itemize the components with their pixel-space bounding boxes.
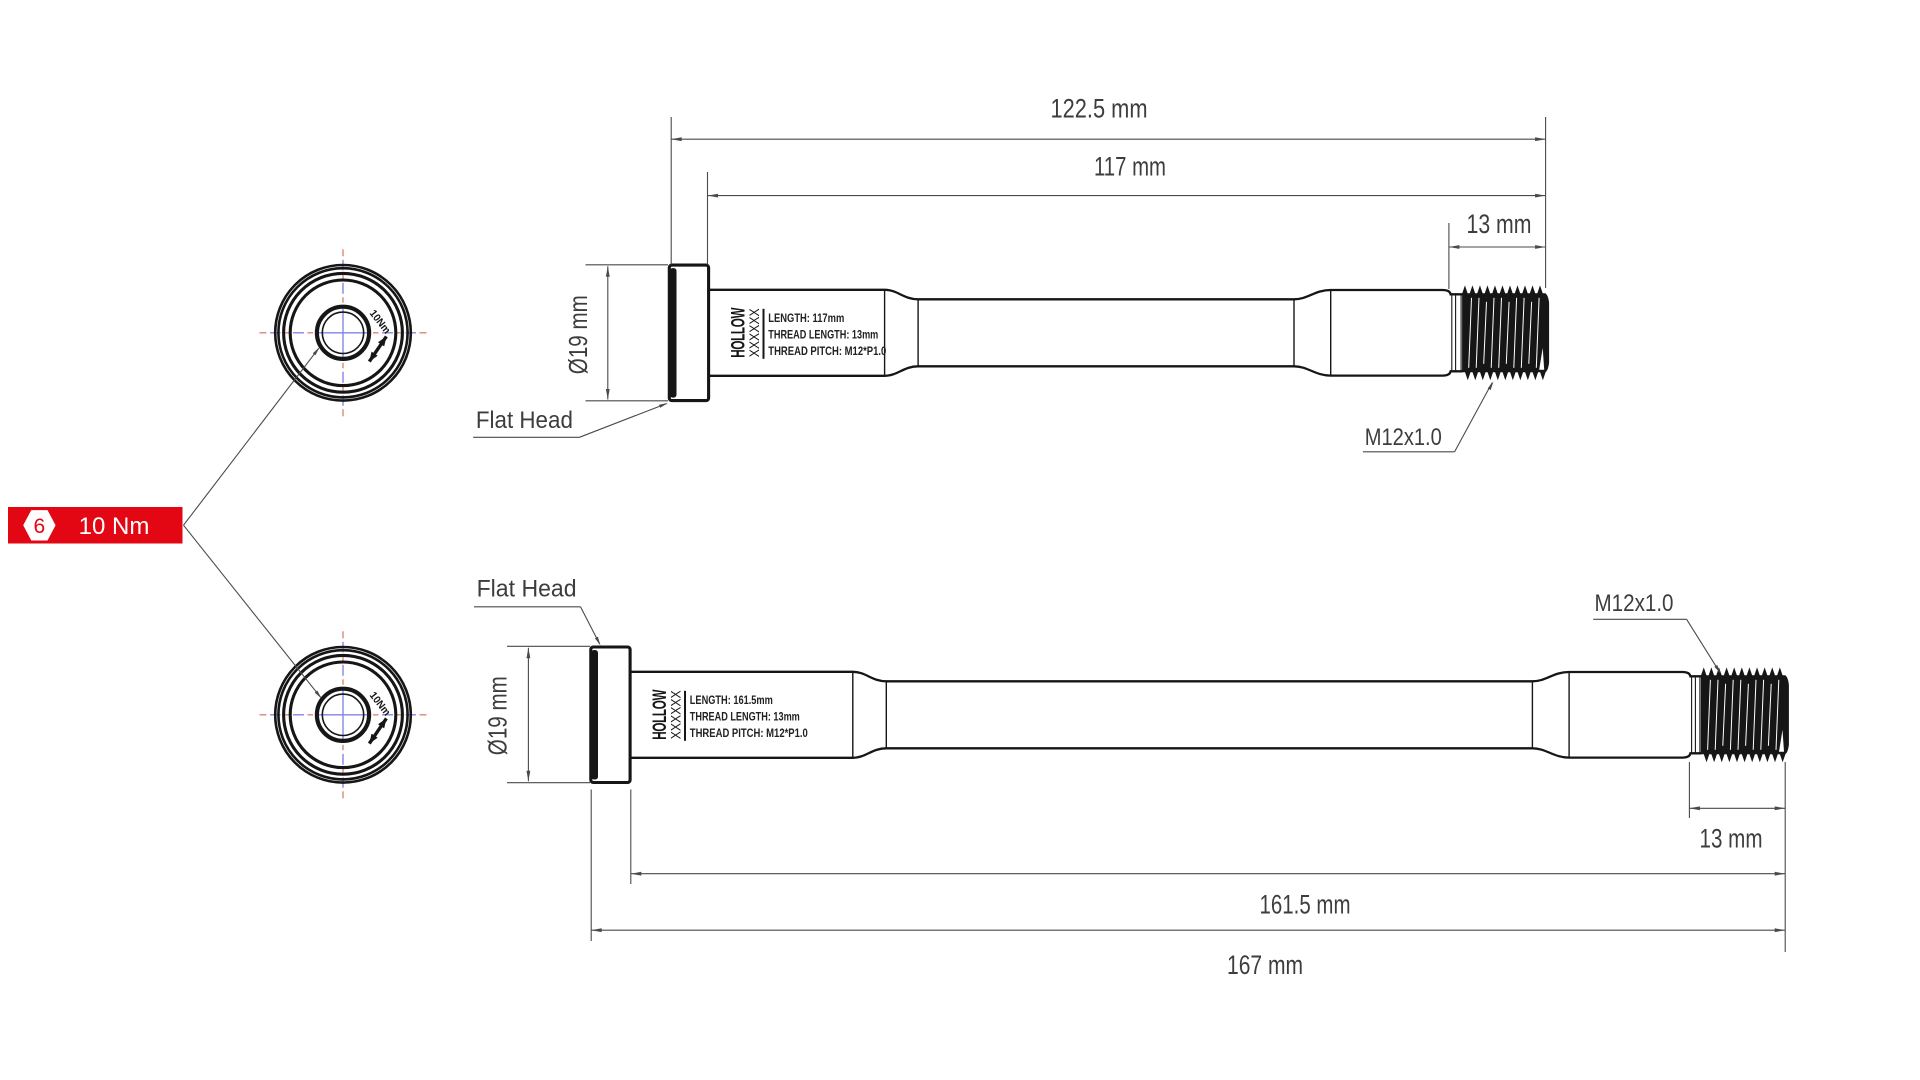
svg-text:10 Nm: 10 Nm [79,513,150,540]
svg-text:LENGTH: 161.5mm: LENGTH: 161.5mm [690,695,773,707]
svg-text:XXXXXX: XXXXXX [746,308,762,358]
svg-text:122.5 mm: 122.5 mm [1051,94,1148,124]
svg-text:167 mm: 167 mm [1227,950,1303,980]
svg-text:THREAD LENGTH: 13mm: THREAD LENGTH: 13mm [690,712,800,724]
svg-text:THREAD LENGTH: 13mm: THREAD LENGTH: 13mm [768,330,878,342]
svg-text:M12x1.0: M12x1.0 [1595,590,1674,617]
svg-text:13 mm: 13 mm [1700,823,1763,853]
svg-text:THREAD PITCH: M12*P1.0: THREAD PITCH: M12*P1.0 [768,346,886,358]
svg-text:Flat Head: Flat Head [477,576,577,603]
svg-text:Ø19 mm: Ø19 mm [563,295,593,374]
svg-text:XXXXXX: XXXXXX [667,690,683,740]
svg-text:Flat Head: Flat Head [476,407,573,434]
svg-text:13 mm: 13 mm [1467,209,1532,239]
svg-text:M12x1.0: M12x1.0 [1365,424,1442,451]
svg-text:LENGTH: 117mm: LENGTH: 117mm [768,313,844,325]
svg-text:6: 6 [34,515,46,538]
svg-text:161.5 mm: 161.5 mm [1260,890,1351,920]
svg-text:117 mm: 117 mm [1094,151,1166,181]
svg-text:THREAD PITCH: M12*P1.0: THREAD PITCH: M12*P1.0 [690,728,808,740]
svg-text:Ø19 mm: Ø19 mm [483,676,513,755]
